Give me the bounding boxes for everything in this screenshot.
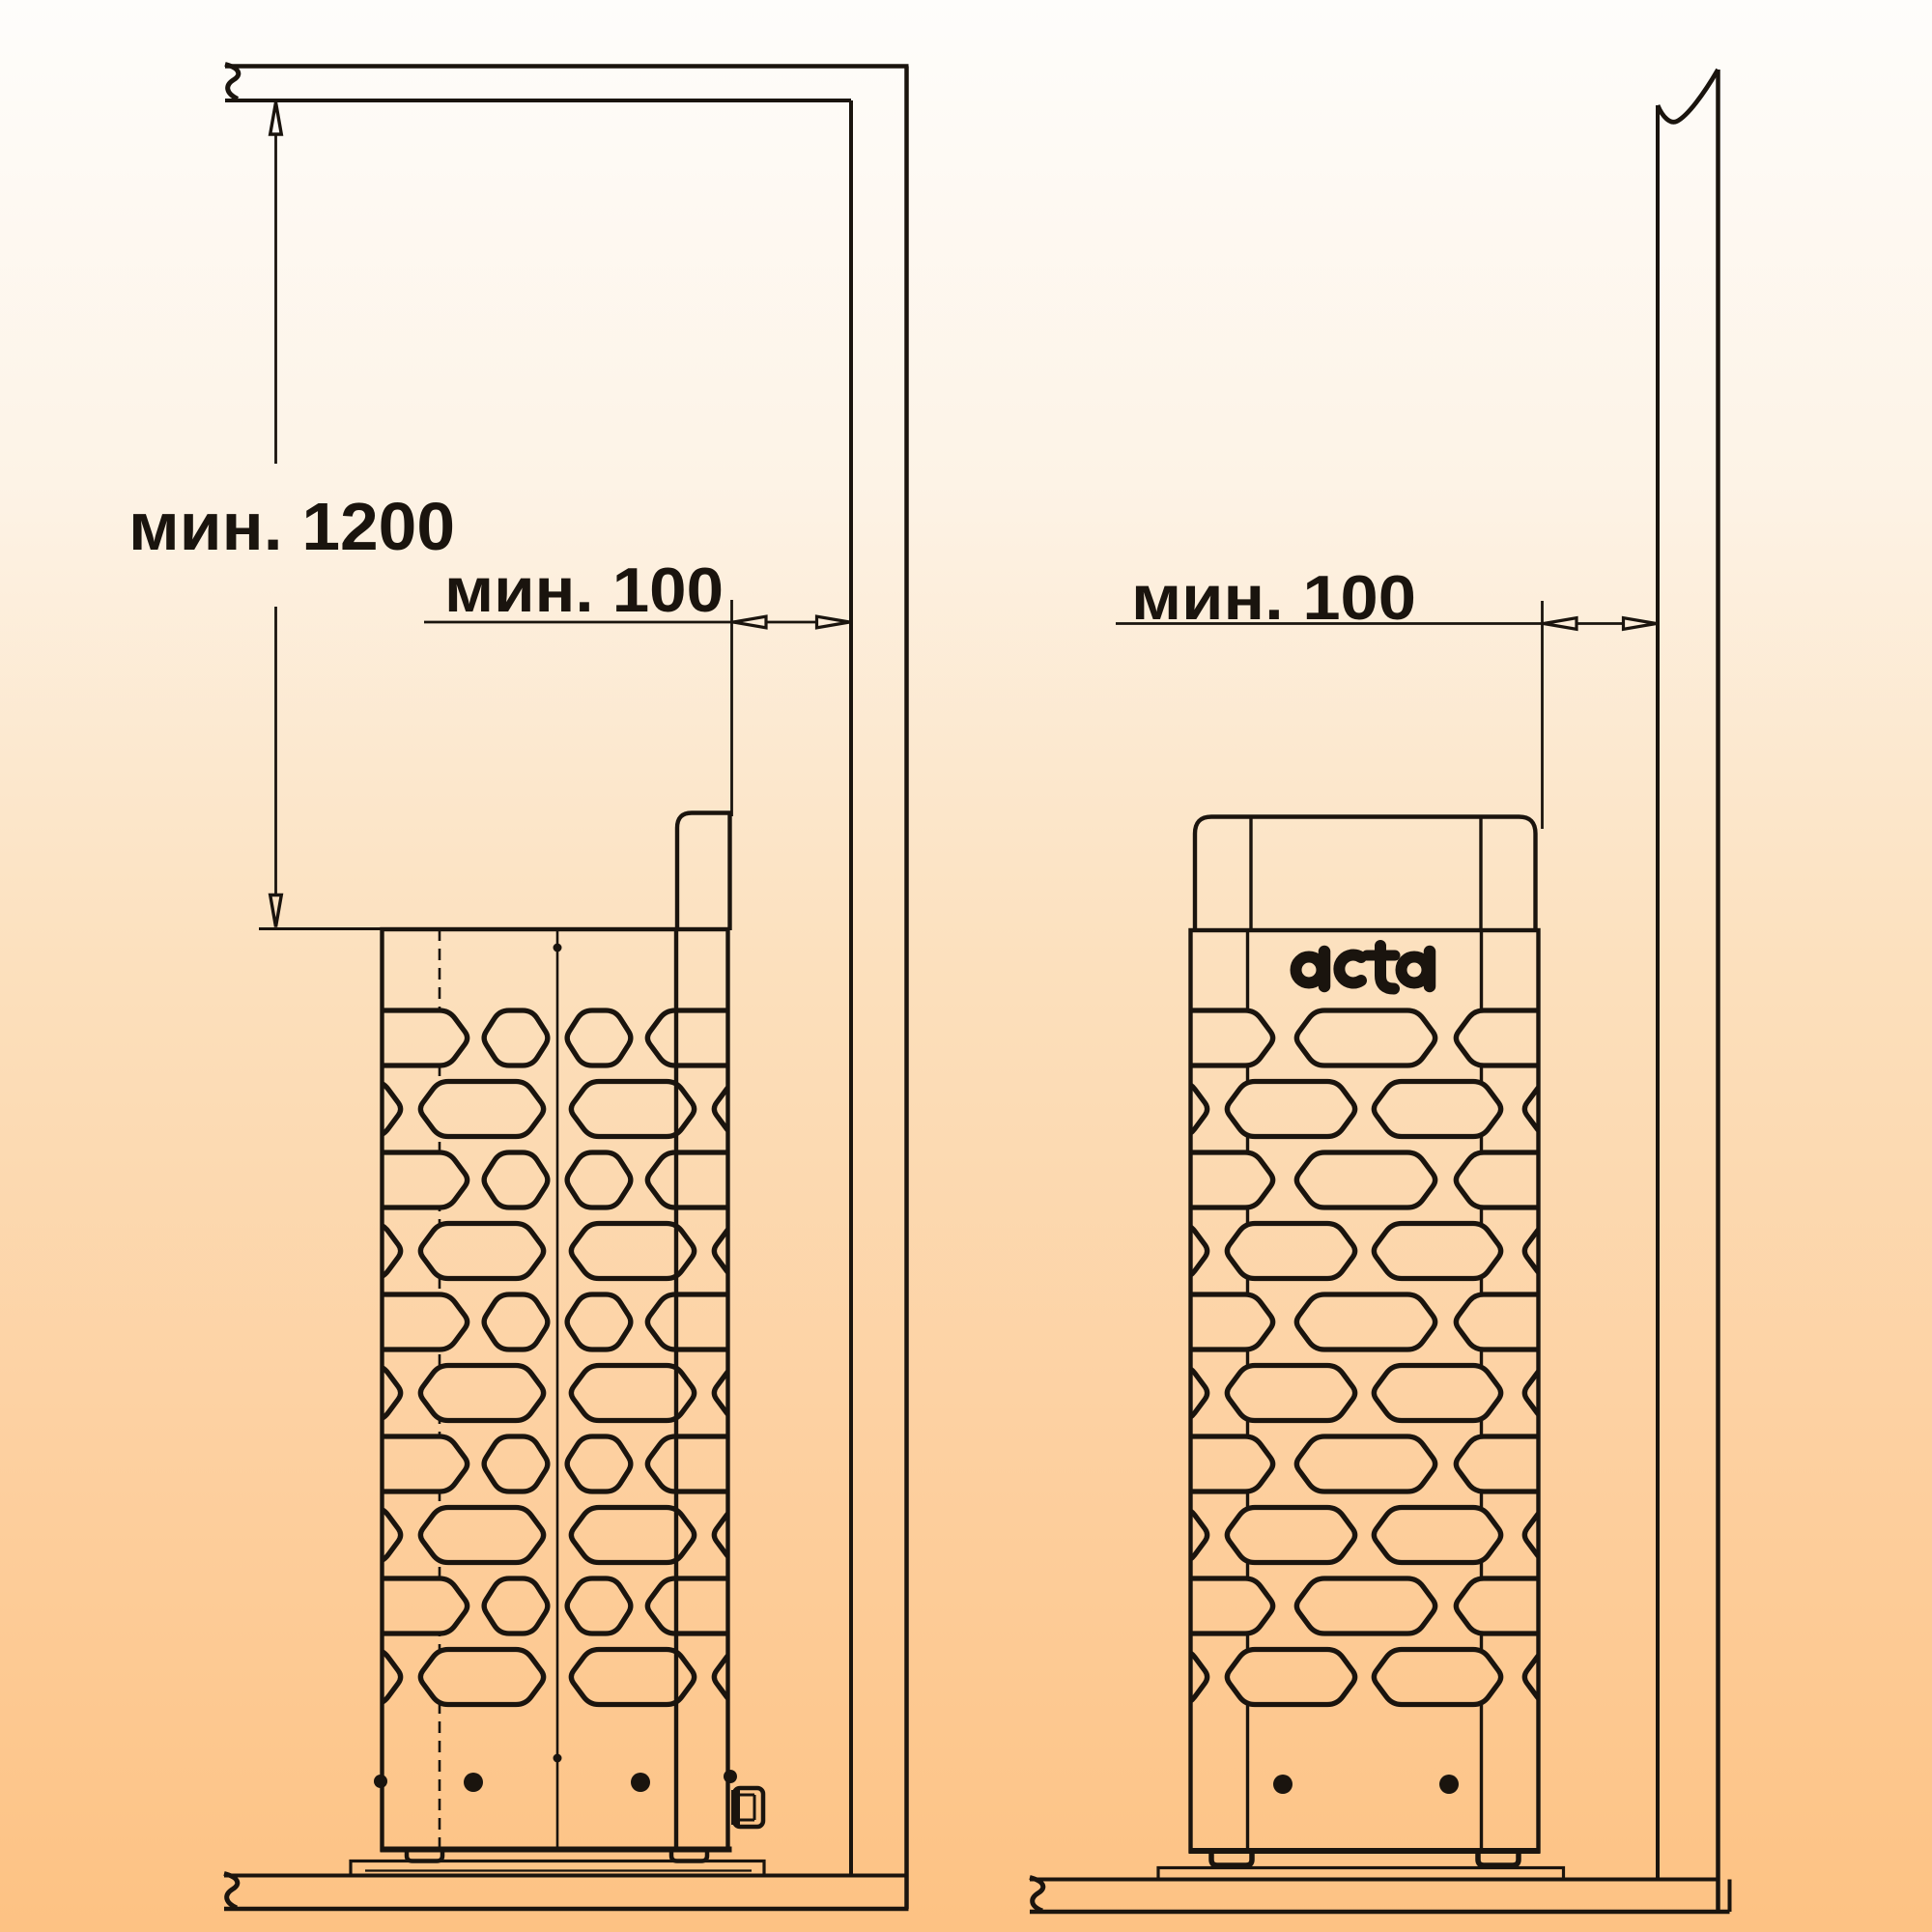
svg-text:мин. 100: мин. 100 (1131, 562, 1416, 633)
svg-text:мин. 1200: мин. 1200 (128, 489, 455, 564)
svg-text:мин. 100: мин. 100 (444, 554, 724, 625)
